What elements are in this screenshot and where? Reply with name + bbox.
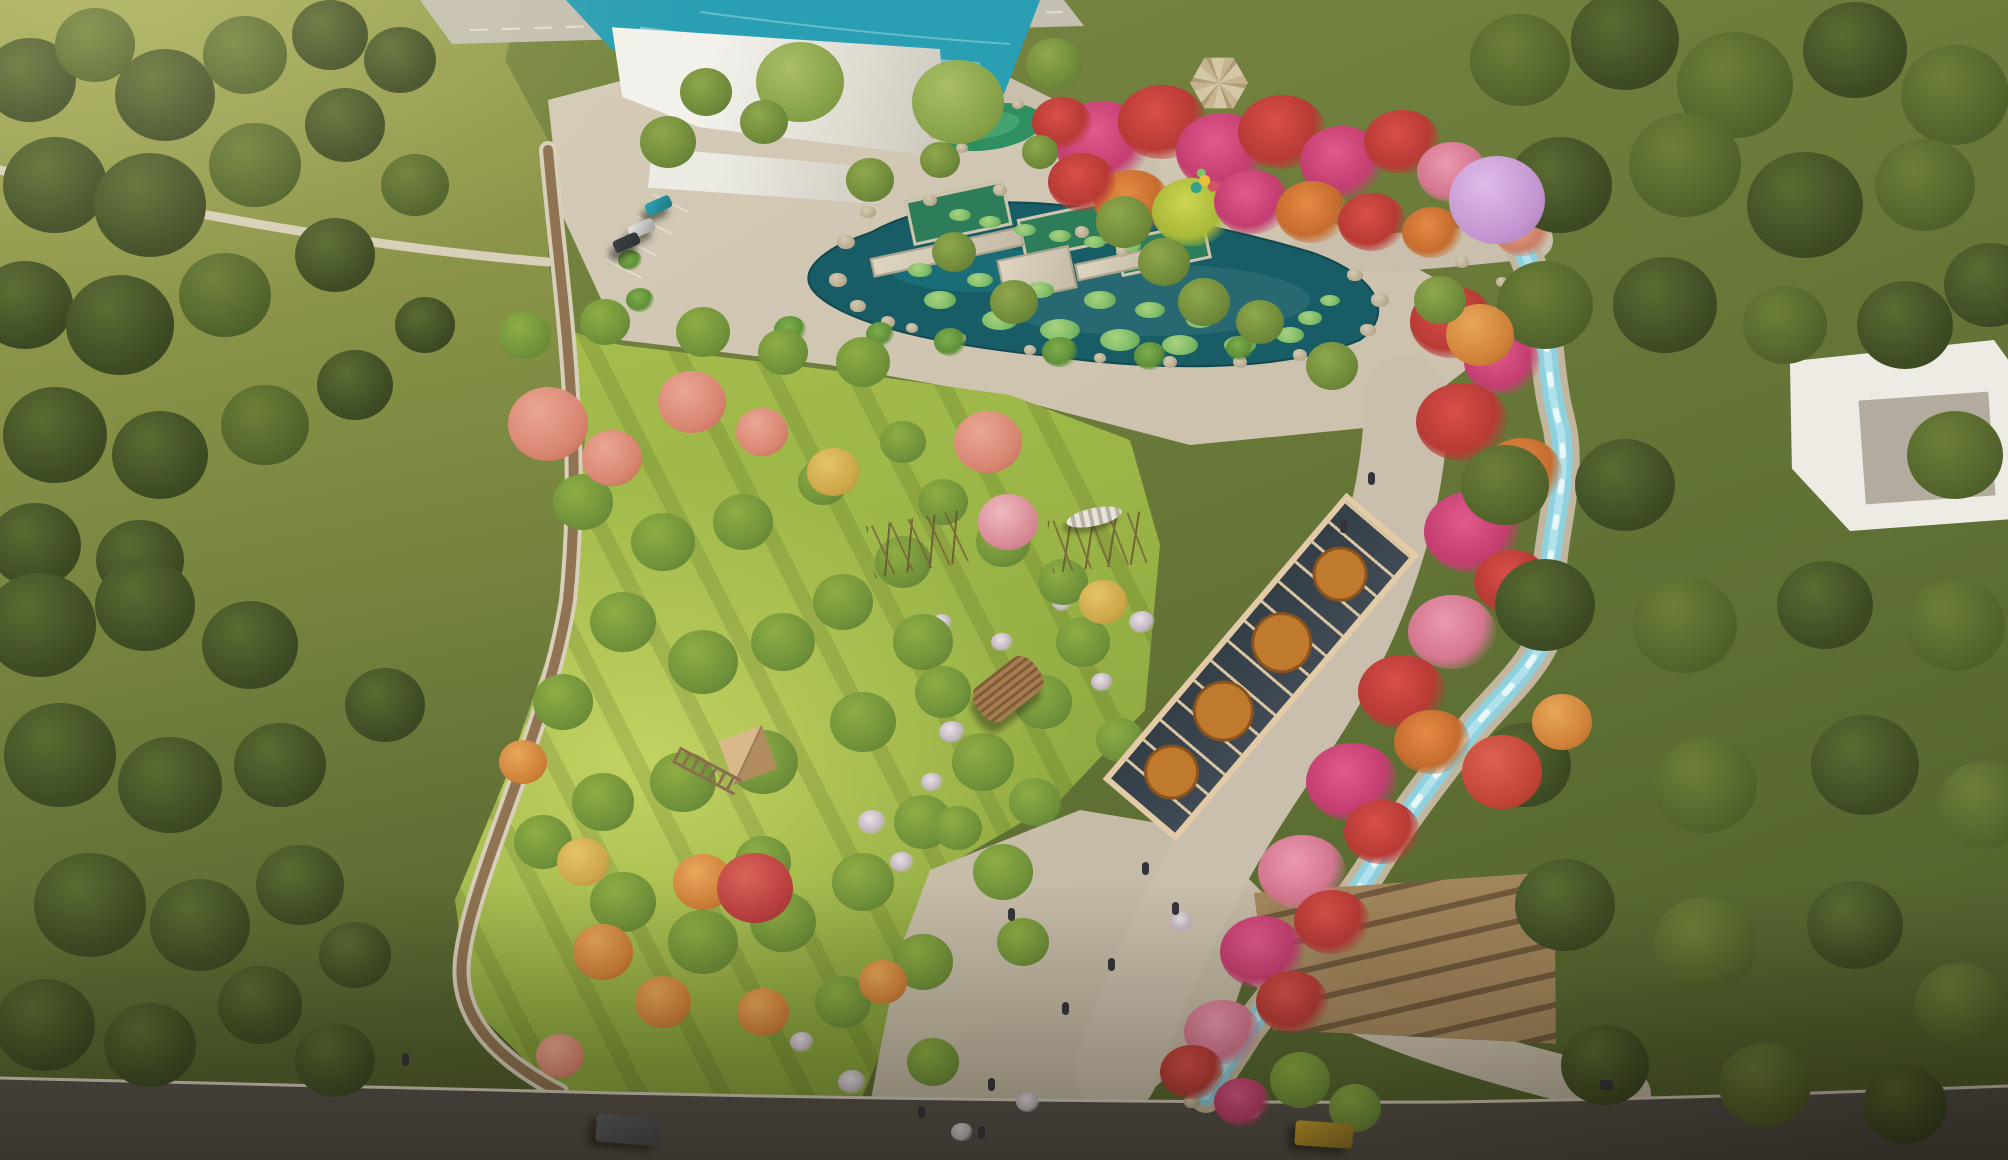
flower-shrub-rd — [1344, 800, 1420, 865]
rock — [1455, 256, 1469, 267]
tree-dk — [1575, 439, 1675, 531]
tree-lt — [1306, 342, 1358, 390]
tree-dk — [1777, 561, 1873, 649]
flower-shrub-rg — [1134, 342, 1166, 369]
tree-dk — [364, 27, 436, 93]
tree-lawn — [934, 806, 982, 850]
tree-md — [1905, 579, 2005, 671]
tree-dk — [295, 218, 375, 292]
pedestrian — [1062, 1002, 1069, 1015]
tree-md — [381, 154, 449, 217]
tree-lawn — [580, 299, 630, 345]
lily-pad-cluster — [924, 291, 956, 309]
lily-pad-cluster — [1014, 224, 1036, 236]
tree-lt — [846, 158, 894, 202]
tree-dk — [305, 88, 385, 162]
tree-lawn — [590, 592, 656, 653]
tree-dk — [3, 137, 107, 233]
tree-dk — [150, 879, 250, 971]
tree-lawn — [952, 733, 1014, 790]
flower-shrub-wt — [790, 1032, 814, 1052]
tree-lawn — [1009, 778, 1061, 826]
tree-dk — [218, 966, 302, 1043]
pedestrian — [978, 1126, 985, 1139]
tree-md — [209, 123, 301, 208]
tree-lt — [1414, 276, 1466, 324]
tree-lt — [1022, 135, 1058, 168]
lily-pad-cluster — [1162, 335, 1198, 355]
rock — [1094, 353, 1106, 363]
tree-lawn — [758, 329, 808, 375]
tree-md — [1914, 963, 2006, 1048]
tree-md — [203, 16, 287, 93]
tree-dk — [256, 845, 344, 926]
flower-shrub-rd — [1294, 890, 1370, 955]
tree-md — [1907, 411, 2003, 499]
tree-lt — [920, 142, 960, 179]
tree-dk — [345, 668, 425, 742]
tree-dk — [94, 153, 206, 256]
flower-shrub-rd — [1256, 971, 1328, 1032]
lily-pad-cluster — [979, 216, 1001, 228]
tree-lawn — [893, 614, 953, 669]
pedestrian — [988, 1078, 995, 1091]
lily-pad-cluster — [949, 209, 971, 221]
tree-pinkT — [978, 494, 1038, 549]
lily-pad-cluster — [1298, 311, 1322, 324]
flower-shrub-rd — [1338, 193, 1406, 251]
tree-dk — [3, 387, 107, 483]
tree-lawn — [590, 872, 656, 933]
pedestrian — [1172, 902, 1179, 915]
tree-dk — [112, 411, 208, 499]
tree-dk — [1807, 881, 1903, 969]
tree-lawn — [668, 910, 738, 974]
tree-lawn — [830, 692, 896, 753]
tree-orange — [573, 924, 633, 979]
tree-lawn — [813, 574, 873, 629]
tree-lawn — [676, 307, 730, 357]
rock — [850, 300, 866, 313]
lily-pad-cluster — [908, 263, 932, 276]
tree-lawn — [631, 513, 695, 572]
flower-shrub-wt — [1091, 673, 1113, 692]
tree-lawn — [973, 844, 1033, 899]
tree-dk — [115, 49, 215, 141]
rock — [1293, 349, 1307, 360]
yellow-taxi — [1294, 1120, 1354, 1149]
flower-shrub-mg — [1214, 1078, 1270, 1126]
tree-salmon — [536, 1034, 584, 1078]
tree-md — [1633, 577, 1737, 673]
tree-md — [1461, 445, 1549, 526]
tree-lawn — [915, 666, 971, 718]
tree-lt — [990, 280, 1038, 324]
pedestrian — [918, 1106, 925, 1119]
tree-md — [179, 253, 271, 338]
rock — [993, 184, 1007, 195]
tree-lawn — [836, 337, 890, 387]
tree-dk — [395, 297, 455, 352]
tree-lt — [1138, 238, 1190, 286]
tree-golden — [1079, 580, 1127, 624]
tree-dk — [317, 350, 393, 420]
cyclist — [1600, 1080, 1613, 1090]
flower-shrub-rg — [1042, 337, 1078, 368]
tree-dk — [1515, 859, 1615, 951]
tree-birch — [912, 60, 1004, 145]
tree-purple — [1449, 156, 1545, 244]
tree-lt — [1026, 38, 1082, 90]
tree-lt — [680, 68, 732, 116]
pedestrian — [1142, 862, 1149, 875]
tree-lawn — [713, 494, 773, 549]
tree-lawn — [572, 773, 634, 830]
lily-pad-cluster — [1084, 291, 1116, 309]
tree-red — [1462, 735, 1542, 809]
tree-lt — [640, 116, 696, 168]
tree-dk — [1803, 2, 1907, 98]
peacock-topiary-sculpture — [1186, 168, 1220, 196]
tree-dk — [1613, 257, 1717, 353]
tree-dk — [319, 922, 391, 988]
tree-orange — [499, 740, 547, 784]
tree-dk — [295, 1023, 375, 1097]
tree-md — [1743, 286, 1827, 363]
flower-shrub-orR — [1276, 181, 1348, 242]
tree-dk — [1747, 152, 1863, 259]
pedestrian — [1340, 520, 1347, 533]
pedestrian — [402, 1053, 409, 1066]
tree-dk — [4, 703, 116, 806]
rock — [829, 273, 847, 287]
tree-md — [221, 385, 309, 466]
tree-dk — [292, 0, 368, 70]
rock — [837, 235, 855, 249]
tree-dk — [34, 853, 146, 956]
lily-pad-cluster — [1100, 329, 1140, 351]
lily-pad-cluster — [1320, 295, 1340, 306]
tree-dk — [1495, 559, 1595, 651]
tree-salmon — [508, 387, 588, 461]
tree-md — [1653, 897, 1757, 993]
tree-lawn — [751, 613, 815, 672]
tree-lawn — [1056, 617, 1110, 667]
tree-dk — [1857, 281, 1953, 369]
bottom-road — [0, 1078, 2008, 1160]
flower-shrub-rg — [934, 328, 966, 355]
rock — [1371, 293, 1389, 307]
tree-lt — [740, 100, 788, 144]
tree-salmon — [736, 408, 788, 456]
tree-lt — [1178, 278, 1230, 326]
flower-shrub-orR — [1394, 710, 1470, 775]
gray-car-road — [595, 1113, 661, 1146]
lily-pad-cluster — [1049, 230, 1071, 242]
tree-dk — [1811, 715, 1919, 814]
tree-dk — [118, 737, 222, 833]
tree-md — [1901, 45, 2008, 144]
flower-shrub-wt — [991, 633, 1013, 652]
flower-shrub-wt — [890, 852, 914, 872]
tree-lawn — [499, 311, 551, 359]
flower-shrub-rg — [626, 288, 654, 312]
pedestrian — [1008, 908, 1015, 921]
flower-shrub-wt — [1016, 1092, 1040, 1112]
rock — [1116, 247, 1128, 257]
rock — [1075, 226, 1089, 237]
tree-golden — [557, 838, 609, 886]
rock — [1024, 345, 1036, 355]
tree-md — [1629, 113, 1741, 216]
tree-dk — [104, 1003, 196, 1088]
tree-salmon — [582, 430, 642, 485]
tree-lt — [1236, 300, 1284, 344]
pedestrian — [1108, 958, 1115, 971]
lily-pad-cluster — [1135, 302, 1165, 319]
lily-pad-cluster — [967, 273, 993, 287]
boundary-path-curb — [461, 150, 573, 1092]
flower-shrub-rg — [618, 250, 642, 270]
tree-lawn — [880, 421, 926, 463]
tree-md — [1653, 737, 1757, 833]
tree-crimson — [717, 853, 793, 923]
tree-md — [1875, 139, 1975, 231]
tree-lawn — [997, 918, 1049, 966]
flower-shrub-wt — [951, 1123, 973, 1142]
tree-salmon — [954, 411, 1022, 474]
rock — [923, 194, 937, 205]
tree-dk — [66, 275, 174, 374]
rock — [860, 206, 876, 219]
tree-orange — [737, 988, 789, 1036]
rock — [1012, 99, 1024, 109]
rock — [906, 323, 918, 333]
tree-lawn — [832, 853, 894, 910]
tree-lt — [932, 232, 976, 272]
tree-orange — [635, 976, 691, 1028]
tree-lawn — [907, 1038, 959, 1086]
rock — [1360, 324, 1376, 337]
tree-salmon — [658, 371, 726, 434]
flower-shrub-wt — [838, 1070, 866, 1094]
flower-shrub-wt — [921, 773, 943, 792]
tree-dk — [202, 601, 298, 689]
tree-lawn — [1270, 1052, 1330, 1107]
tree-lt — [1096, 196, 1152, 248]
rock — [1347, 269, 1363, 282]
tree-orange — [859, 960, 907, 1004]
tree-lawn — [668, 630, 738, 694]
flower-shrub-wt — [858, 810, 886, 834]
park-aerial-render: Aerial rendering of a park landscape des… — [0, 0, 2008, 1160]
tree-dk — [1561, 1025, 1649, 1106]
tree-lawn — [533, 674, 593, 729]
tree-dk — [1863, 1066, 1947, 1143]
pedestrian — [1368, 472, 1375, 485]
tree-dk — [234, 723, 326, 808]
flower-shrub-rd — [1160, 1045, 1224, 1099]
tree-golden — [807, 448, 859, 496]
tree-md — [1719, 1043, 1811, 1128]
flower-shrub-wt — [1129, 611, 1155, 633]
tree-md — [1470, 14, 1570, 106]
tree-orange — [1532, 694, 1592, 749]
tree-dk — [95, 559, 195, 651]
